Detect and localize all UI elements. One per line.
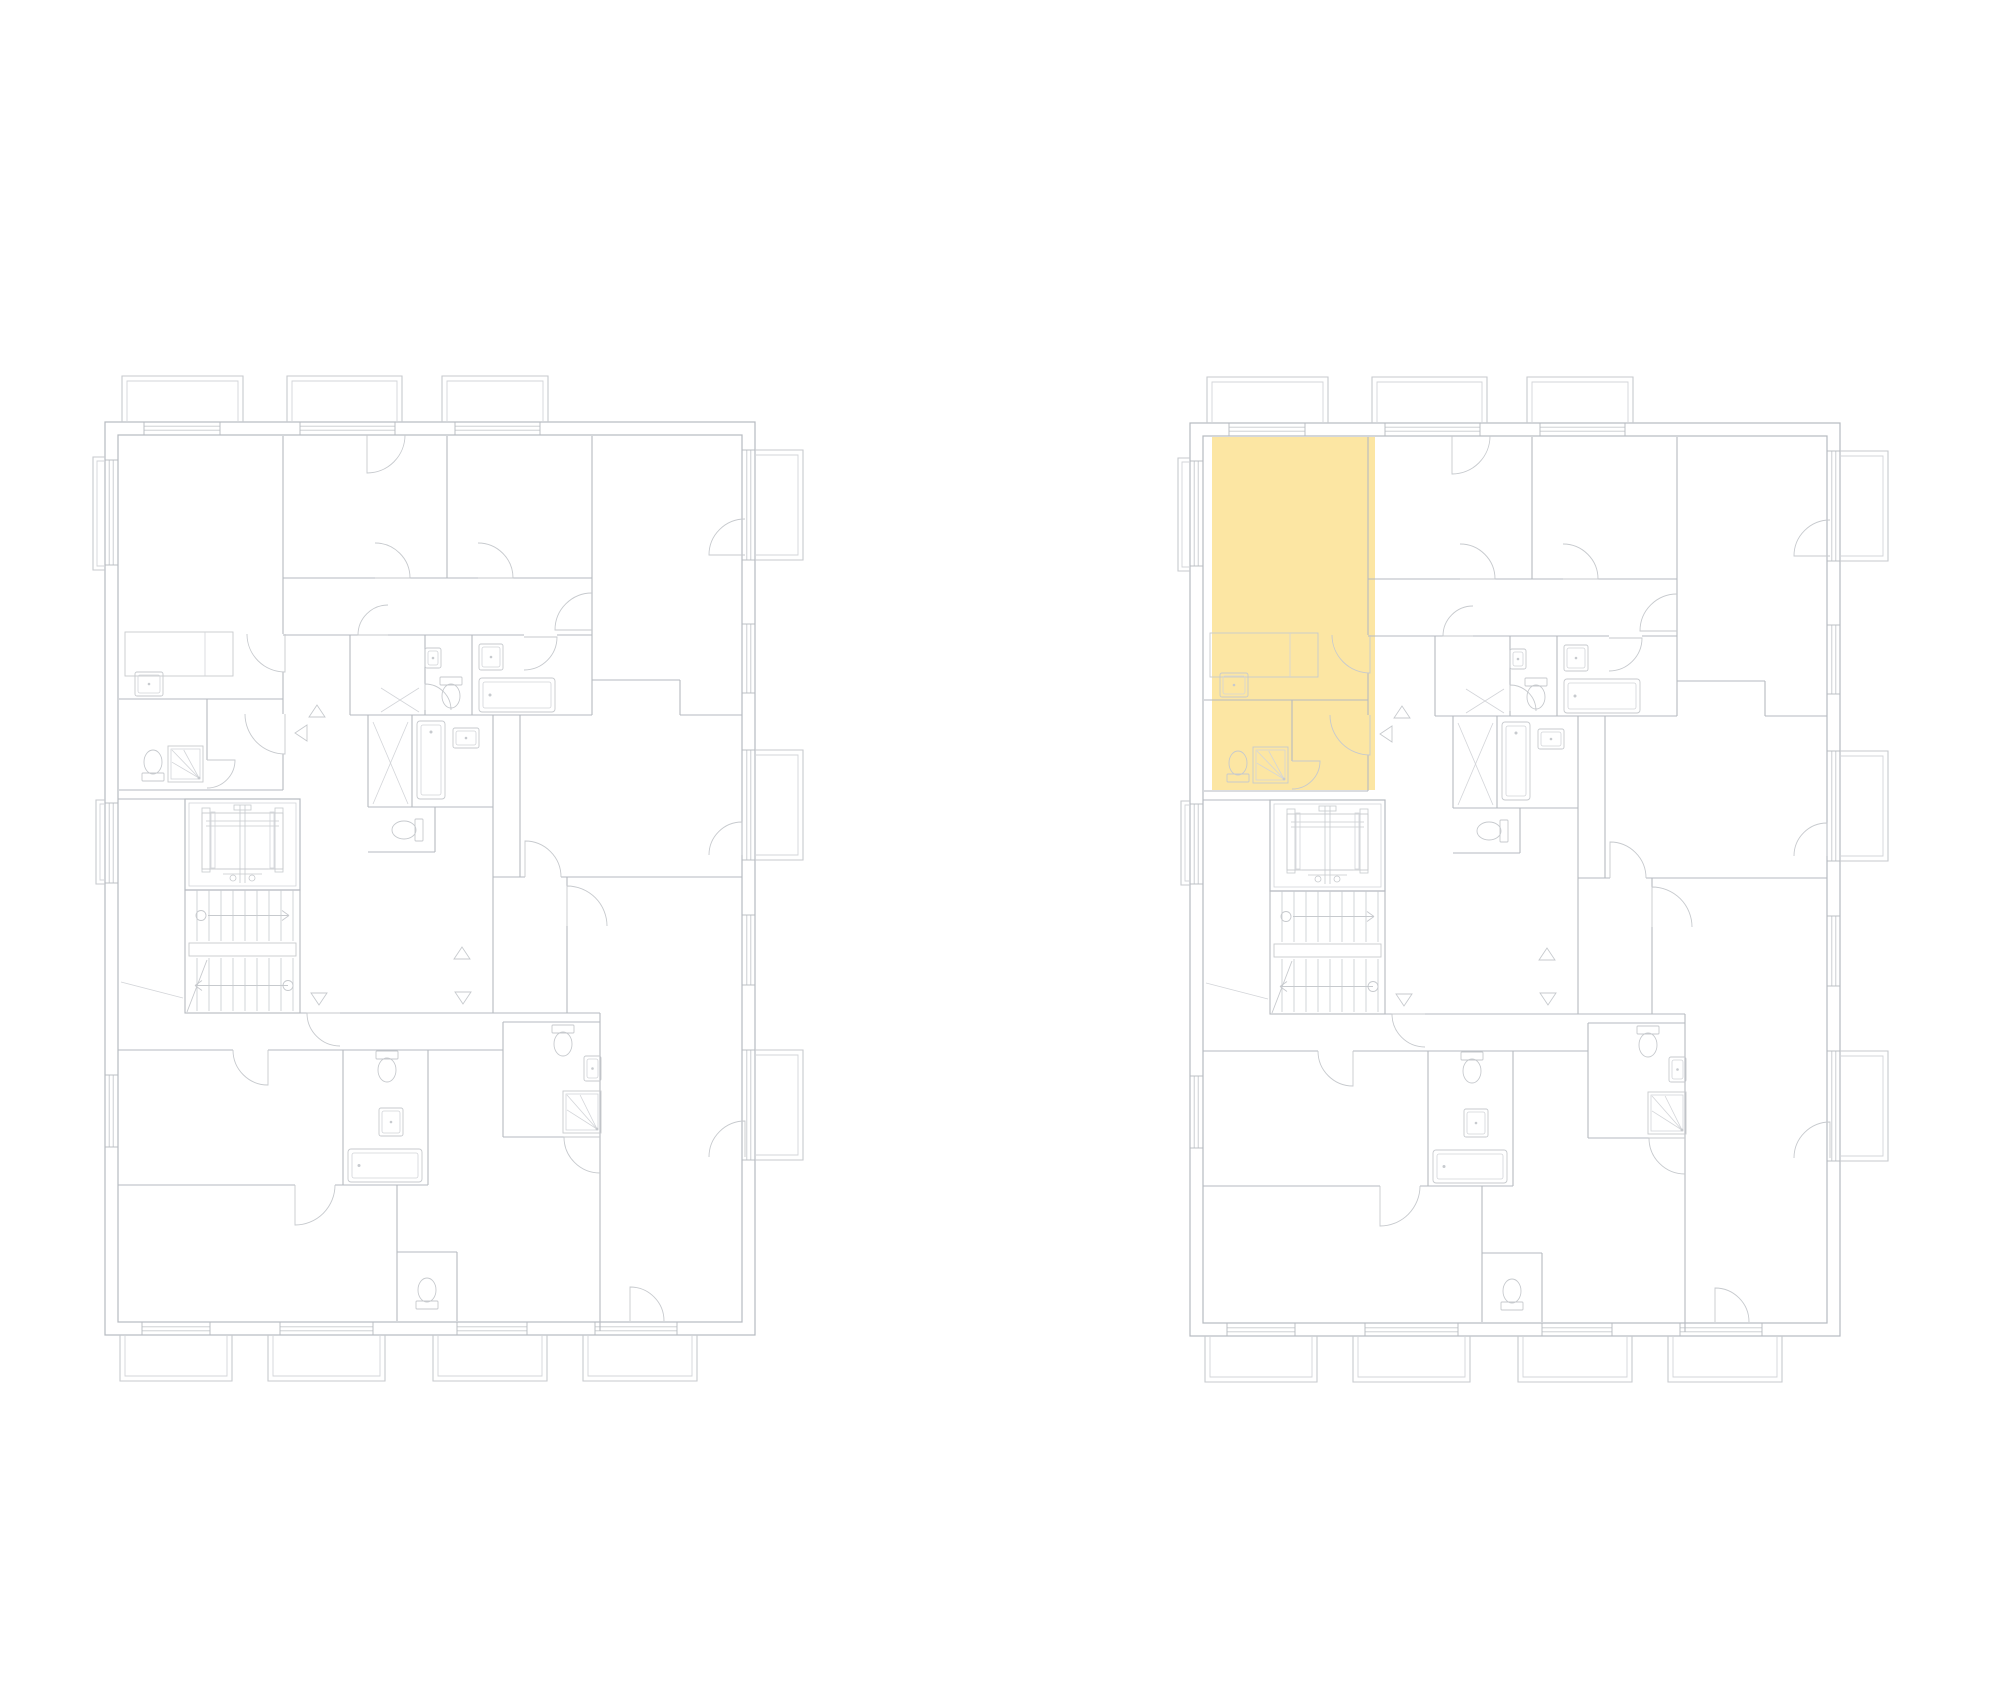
staircase bbox=[1270, 891, 1385, 1014]
floorplans-drawing bbox=[0, 0, 2000, 1700]
page-canvas bbox=[0, 0, 2000, 1700]
balconies bbox=[93, 376, 803, 1381]
elevator bbox=[1270, 800, 1385, 891]
exterior-walls bbox=[105, 422, 755, 1335]
elevator bbox=[185, 799, 300, 890]
interior-walls bbox=[118, 436, 742, 1331]
fixtures bbox=[121, 632, 601, 1309]
staircase bbox=[185, 890, 300, 1013]
floor-plan-right bbox=[1178, 377, 1888, 1382]
doors bbox=[207, 435, 745, 1321]
window-glazing bbox=[105, 422, 755, 1335]
highlighted-unit[interactable] bbox=[1212, 437, 1375, 790]
floor-plan-left bbox=[93, 376, 803, 1381]
